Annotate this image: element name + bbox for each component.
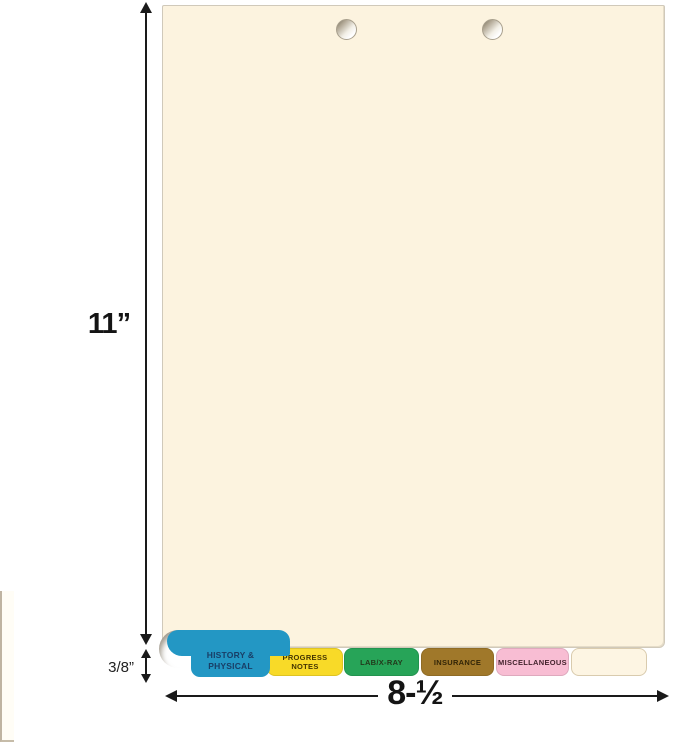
- tab-label: INSURANCE: [434, 658, 481, 667]
- arrowhead-down-icon: [141, 674, 151, 683]
- dimension-line: [177, 695, 378, 697]
- dimension-line: [145, 8, 147, 640]
- tab-label: LAB/X-RAY: [360, 658, 403, 667]
- arrowhead-left-icon: [165, 690, 177, 702]
- tab-label: MISCELLANEOUS: [498, 658, 567, 667]
- divider-sheet: [162, 5, 665, 648]
- tab-blank: [571, 648, 647, 676]
- punch-hole-icon: [482, 19, 503, 40]
- adjacent-page-corner: [0, 591, 14, 742]
- tab-label: HISTORY & PHYSICAL: [191, 645, 270, 676]
- arrowhead-right-icon: [657, 690, 669, 702]
- width-label: 8-½: [355, 674, 475, 713]
- product-diagram: PROGRESS NOTES LAB/X-RAY INSURANCE MISCE…: [0, 0, 679, 746]
- arrowhead-up-icon: [141, 649, 151, 658]
- height-label: 11”: [82, 308, 136, 341]
- tab-insurance: INSURANCE: [421, 648, 494, 676]
- punch-hole-icon: [336, 19, 357, 40]
- tab-miscellaneous: MISCELLANEOUS: [496, 648, 569, 676]
- dimension-line: [452, 695, 658, 697]
- tab-depth-label: 3/8”: [92, 659, 134, 676]
- tab-lab-xray: LAB/X-RAY: [344, 648, 419, 676]
- arrowhead-up-icon: [140, 2, 152, 13]
- arrowhead-down-icon: [140, 634, 152, 645]
